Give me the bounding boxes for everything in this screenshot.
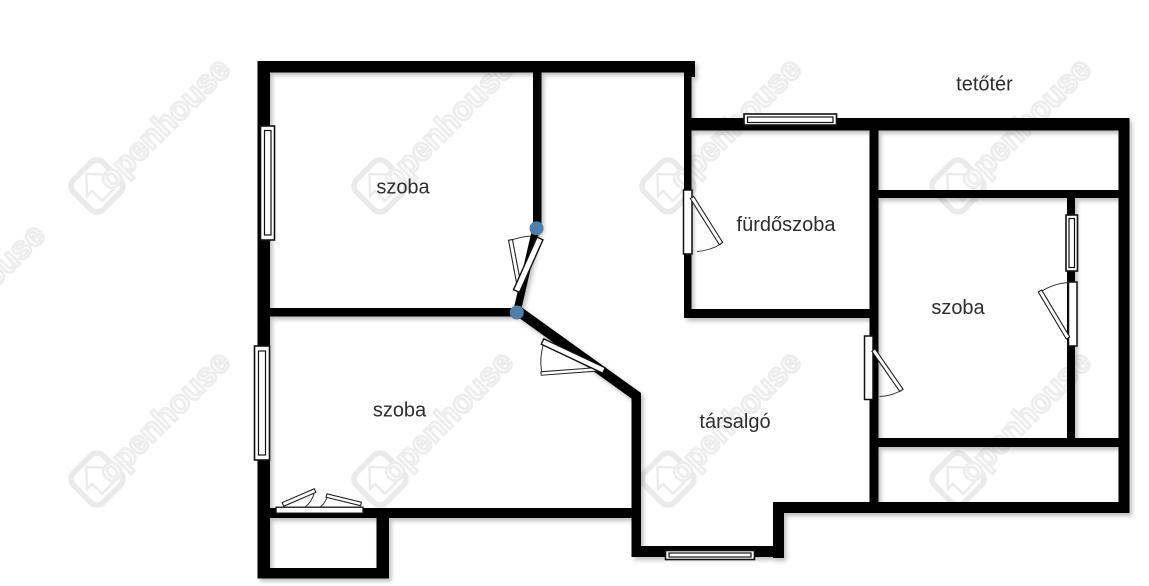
svg-text:szoba: szoba <box>931 297 985 319</box>
svg-text:társalgó: társalgó <box>699 411 770 433</box>
svg-text:szoba: szoba <box>373 400 427 422</box>
svg-text:fürdőszoba: fürdőszoba <box>737 214 837 236</box>
svg-text:tetőtér: tetőtér <box>956 74 1013 96</box>
svg-text:szoba: szoba <box>376 177 430 199</box>
